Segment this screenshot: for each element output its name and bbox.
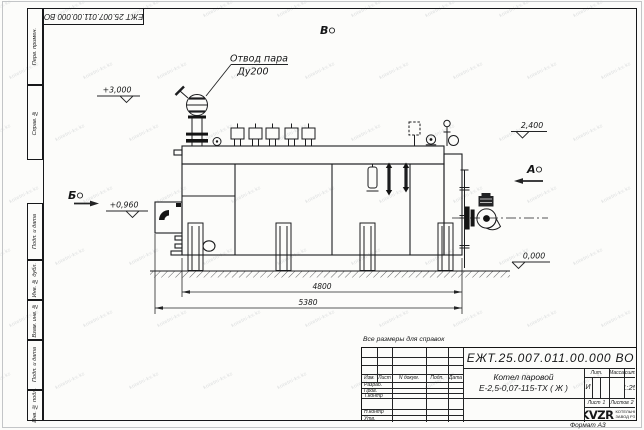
dashed-future-fitting [409, 122, 420, 135]
wall-stub [175, 236, 182, 240]
col-list: Лист [377, 374, 392, 382]
masshtab-header: Масштаб [624, 368, 635, 377]
kvzr-logo-text: KVZR [584, 408, 613, 422]
steam-outlet-valve [176, 87, 209, 147]
listov-label: Листов [611, 400, 629, 406]
col-data: Дата [448, 374, 463, 382]
support-legs [188, 223, 453, 271]
wall-stub [175, 244, 182, 248]
list-label: Лист [588, 400, 601, 406]
org-name: КОТЕЛЬНЫЙ ЗАВОД РЭП [615, 410, 635, 420]
product-line2: Е-2,5-0,07-115-ТХ ( Ж ) [479, 383, 568, 394]
list-value: 1 [603, 400, 606, 406]
ground-line [150, 271, 510, 278]
view-v-letter: В [320, 24, 328, 37]
view-a-letter: А [526, 163, 536, 176]
front-door-detail [159, 210, 169, 220]
view-b-letter: Б [68, 189, 76, 202]
drawing-sheet: kotelni-kv.kzkotelni-kv.kzkotelni-kv.kzk… [0, 0, 644, 430]
lit-header: Лит. [584, 368, 609, 377]
view-markers: Б А В [68, 24, 543, 206]
lit-value: И [584, 377, 592, 398]
deck-fittings [213, 120, 459, 146]
elev-0000: 0,000 [523, 252, 545, 261]
listov-cell: Листов 2 [609, 398, 635, 407]
boiler-body [155, 146, 462, 255]
reference-note: Все размеры для справок [363, 336, 444, 343]
doc-number: ЕЖТ.25.007.011.00.000 ВО [463, 348, 638, 368]
dim-5380: 5380 [298, 298, 317, 307]
product-line1: Котел паровой [493, 372, 553, 383]
col-izm: Изм. [362, 374, 377, 382]
row-tkontr: Т.контр [362, 393, 392, 398]
manhole-oval [203, 241, 215, 251]
callout-line2: Ду200 [236, 67, 268, 78]
col-podp: Подп. [426, 374, 448, 382]
elev-0960: +0,960 [110, 201, 139, 210]
wall-stub [174, 150, 182, 155]
burner-motor [479, 196, 494, 207]
elevation-marks: +3,000 2,400 +0,960 0,000 [97, 86, 550, 269]
title-block: Изм. Лист N докум. Подп. Дата Разраб. Пр… [361, 347, 637, 421]
internal-fittings [367, 163, 410, 196]
org-logo-cell: KVZR КОТЕЛЬНЫЙ ЗАВОД РЭП [584, 407, 635, 422]
product-name: Котел паровой Е-2,5-0,07-115-ТХ ( Ж ) [463, 368, 584, 398]
massa-header: Масса [609, 368, 624, 377]
callout-line1: Отвод пара [230, 54, 288, 65]
masshtab-value: 1:25 [624, 377, 635, 398]
dim-4800: 4800 [312, 282, 331, 291]
row-utv: Утв. [362, 415, 392, 422]
col-dokum: N докум. [392, 374, 426, 382]
format-note: Формат А3 [570, 422, 606, 429]
elev-2400: 2,400 [521, 121, 543, 130]
wall-stub [171, 251, 182, 255]
elev-3000: +3,000 [103, 86, 132, 95]
org-line2: ЗАВОД РЭП [615, 415, 635, 420]
listov-value: 2 [631, 400, 634, 406]
list-cell: Лист 1 [584, 398, 609, 407]
steam-callout: Отвод пара Ду200 [206, 54, 288, 97]
